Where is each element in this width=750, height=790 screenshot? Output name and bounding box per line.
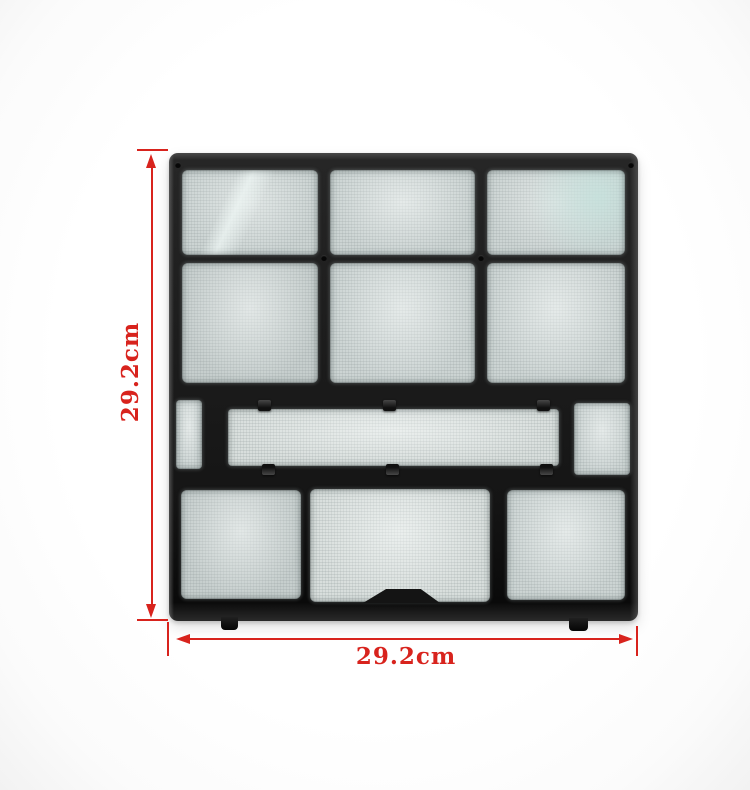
height-dimension-bottom-tick [137, 619, 168, 621]
clip-tab [386, 464, 399, 475]
arrow-left-icon [176, 634, 190, 644]
rivet-dot [321, 255, 327, 261]
width-dimension-line [189, 638, 620, 640]
rivet-dot [175, 162, 181, 168]
product-photo: 29.2cm 29.2cm [0, 0, 750, 790]
mesh-panel-top-row1-left [182, 170, 318, 255]
clip-tab [537, 400, 550, 411]
clip-tab [258, 400, 271, 411]
mesh-panel-bottom-right [507, 490, 625, 600]
arrow-down-icon [146, 604, 156, 618]
mesh-panel-middle-center [228, 409, 559, 466]
clip-tab [383, 400, 396, 411]
clip-tab [262, 464, 275, 475]
rivet-dot [628, 162, 634, 168]
mounting-foot-left [221, 617, 238, 630]
mesh-panel-middle-right [574, 403, 630, 475]
width-dimension-label: 29.2cm [346, 644, 466, 670]
mesh-panel-top-row2-right [487, 263, 625, 383]
mesh-panel-bottom-left [181, 490, 301, 599]
mesh-panel-top-row2-center [330, 263, 475, 383]
mesh-panel-top-row1-right [487, 170, 625, 255]
height-dimension-label: 29.2cm [118, 312, 144, 432]
rivet-dot [478, 255, 484, 261]
mesh-panel-top-row2-left [182, 263, 318, 383]
mounting-foot-right [569, 618, 588, 631]
arrow-right-icon [619, 634, 633, 644]
mesh-panel-middle-left [176, 400, 202, 469]
clip-tab [540, 464, 553, 475]
width-dimension-right-extension [636, 626, 638, 656]
mesh-panel-bottom-center [310, 489, 490, 602]
height-dimension-top-tick [137, 149, 168, 151]
filter-frame [169, 153, 638, 621]
mesh-panel-top-row1-center [330, 170, 475, 255]
width-dimension-left-extension [167, 622, 169, 656]
height-dimension-line [151, 166, 153, 606]
